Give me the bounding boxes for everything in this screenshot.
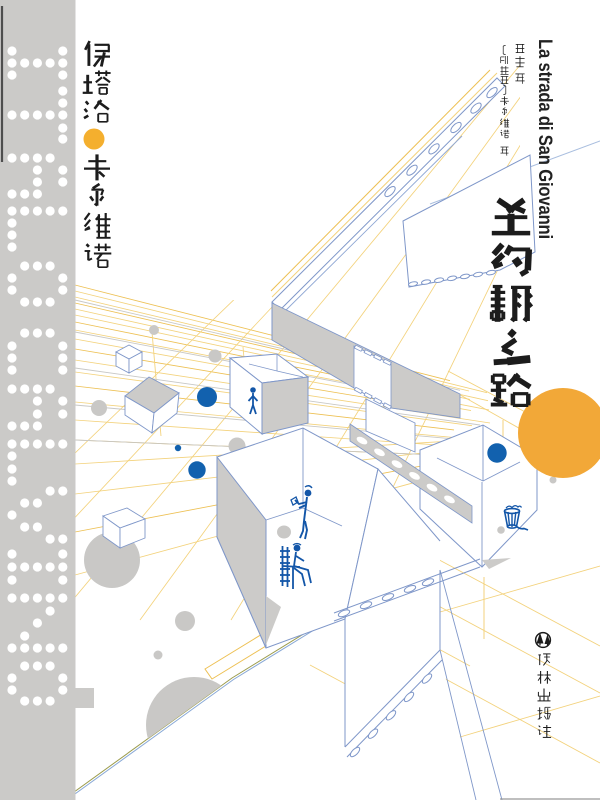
svg-text:La strada di San Giovanni: La strada di San Giovanni — [534, 39, 555, 239]
